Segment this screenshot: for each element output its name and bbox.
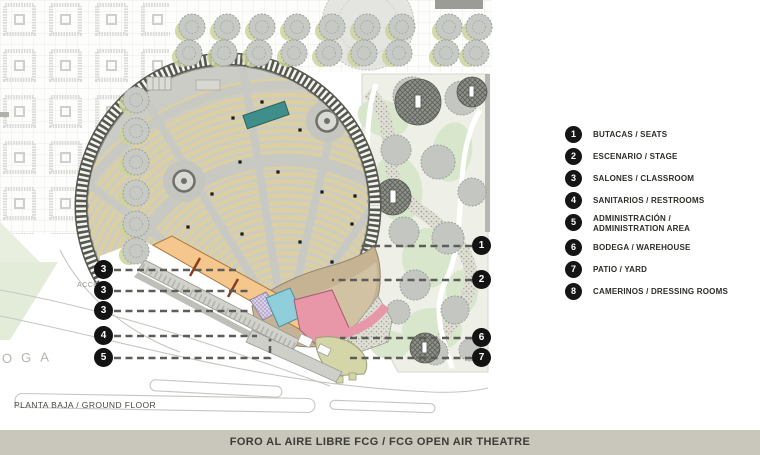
legend-number: 8 <box>565 283 582 300</box>
callout-badge: 1 <box>472 236 491 255</box>
callout-badge: 3 <box>94 281 113 300</box>
site-plan-page: ACCESO OGA PLANTA BAJA / GROUND FLOOR 3 … <box>0 0 760 455</box>
callout-badge: 7 <box>472 348 491 367</box>
callout-badge: 2 <box>472 270 491 289</box>
legend-number: 6 <box>565 239 582 256</box>
legend-number: 1 <box>565 126 582 143</box>
legend-number: 2 <box>565 148 582 165</box>
legend-item-stage: 2 ESCENARIO / STAGE <box>565 148 750 165</box>
legend-item-seats: 1 BUTACAS / SEATS <box>565 126 750 143</box>
callout-badge: 3 <box>94 301 113 320</box>
page-title: FORO AL AIRE LIBRE FCG / FCG OPEN AIR TH… <box>0 430 760 455</box>
legend-number: 7 <box>565 261 582 278</box>
callout-badge: 3 <box>94 260 113 279</box>
floor-caption: PLANTA BAJA / GROUND FLOOR <box>14 400 156 410</box>
legend-item-yard: 7 PATIO / YARD <box>565 261 750 278</box>
legend-number: 5 <box>565 214 582 231</box>
title-bar: FORO AL AIRE LIBRE FCG / FCG OPEN AIR TH… <box>0 430 760 455</box>
legend-item-restrooms: 4 SANITARIOS / RESTROOMS <box>565 192 750 209</box>
legend-item-classroom: 3 SALONES / CLASSROOM <box>565 170 750 187</box>
legend-item-warehouse: 6 BODEGA / WAREHOUSE <box>565 239 750 256</box>
callout-badge: 6 <box>472 328 491 347</box>
legend-number: 4 <box>565 192 582 209</box>
callout-badge: 4 <box>94 326 113 345</box>
callout-badge: 5 <box>94 348 113 367</box>
legend: 1 BUTACAS / SEATS 2 ESCENARIO / STAGE 3 … <box>565 126 750 305</box>
street-name-label: OGA <box>2 349 58 366</box>
spotlight-tower <box>163 160 205 202</box>
legend-item-administration: 5 ADMINISTRACIÓN /ADMINISTRATION AREA <box>565 214 750 234</box>
legend-number: 3 <box>565 170 582 187</box>
legend-item-dressing-rooms: 8 CAMERINOS / DRESSING ROOMS <box>565 283 750 300</box>
